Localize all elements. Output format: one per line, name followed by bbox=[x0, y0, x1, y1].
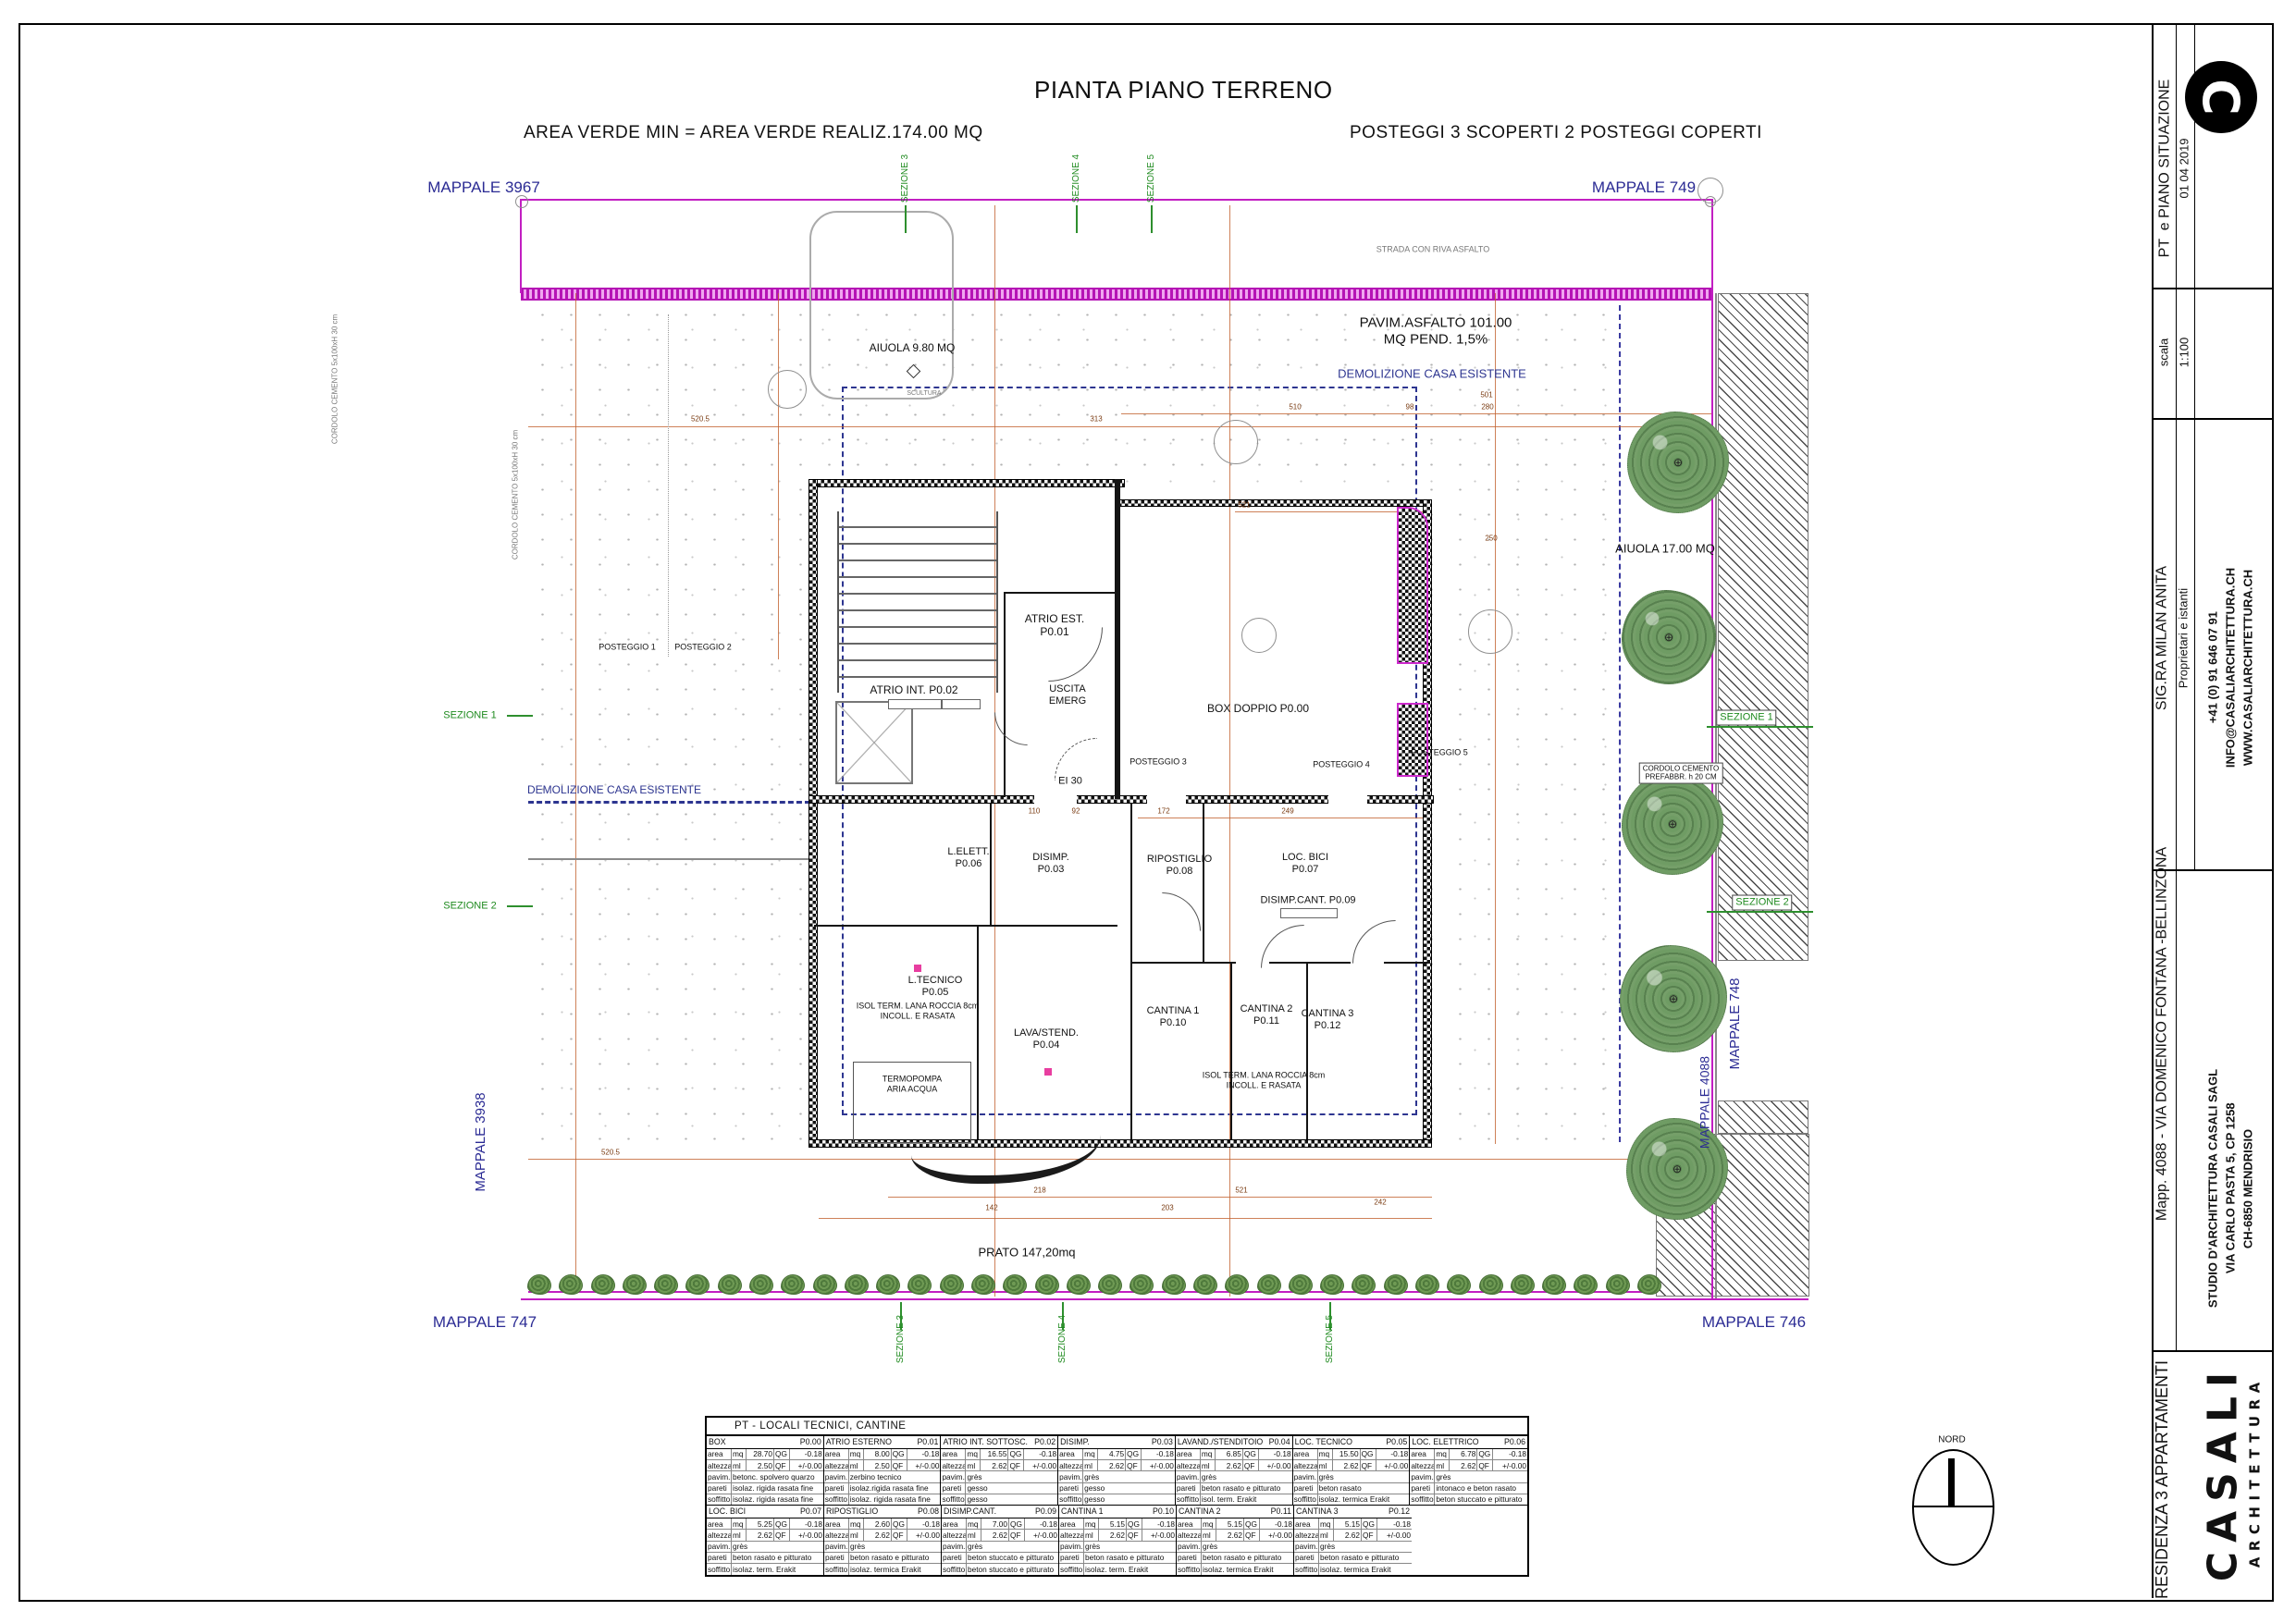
table-cell: area bbox=[707, 1449, 732, 1459]
scale-label: scala bbox=[2156, 338, 2174, 366]
table-cell: 2.62 bbox=[981, 1460, 1008, 1470]
table-cell: LOC. ELETTRICO bbox=[1412, 1438, 1478, 1446]
table-cell: pavim. bbox=[1058, 1471, 1083, 1482]
demolition-label: DEMOLIZIONE CASA ESISTENTE bbox=[1338, 366, 1526, 380]
table-cell: P0.00 bbox=[800, 1438, 821, 1446]
hedge-bush-icon bbox=[623, 1274, 647, 1295]
table-cell: zerbino tecnico bbox=[849, 1471, 941, 1482]
level-tag bbox=[1280, 908, 1338, 918]
hedge-bush-icon bbox=[1352, 1274, 1376, 1295]
table-cell: P0.10 bbox=[1153, 1507, 1174, 1516]
table-cell: 2.62 bbox=[981, 1530, 1009, 1540]
table-cell: +/-0.00 bbox=[1493, 1460, 1527, 1470]
titleblock-divider bbox=[2152, 288, 2272, 289]
dimension-line bbox=[528, 426, 1713, 427]
hedge-bush-icon bbox=[1129, 1274, 1154, 1295]
table-cell: LOC. BICI bbox=[709, 1507, 746, 1516]
table-cell: QG bbox=[1008, 1449, 1024, 1459]
table-cell: area bbox=[942, 1518, 967, 1529]
table-cell: grès bbox=[1201, 1471, 1292, 1482]
table-cell: ml bbox=[967, 1530, 981, 1540]
section-2-label: SEZIONE 2 bbox=[443, 901, 496, 913]
dimension-line bbox=[1121, 413, 1711, 414]
table-cell: isolaz. termica Erakit bbox=[1318, 1494, 1410, 1505]
table-cell: grès bbox=[1083, 1471, 1175, 1482]
table-cell: ATRIO ESTERNO bbox=[826, 1438, 892, 1446]
table-cell: pareti bbox=[941, 1483, 966, 1494]
dim-value: 142 bbox=[985, 1203, 997, 1211]
room-atrio-esterno: ATRIO EST. P0.01 bbox=[1025, 612, 1084, 638]
table-cell: -0.18 bbox=[1024, 1449, 1057, 1459]
table-cell: soffitto bbox=[1058, 1494, 1083, 1505]
circle-marker bbox=[1468, 609, 1512, 654]
table-cell: 2.62 bbox=[864, 1530, 892, 1540]
north-label: NORD bbox=[1938, 1435, 1965, 1445]
room-card-P0.11: CANTINA 2P0.11areamq5.15QG-0.18altezzaml… bbox=[1177, 1506, 1294, 1574]
door-opening bbox=[1147, 795, 1186, 804]
table-cell: area bbox=[707, 1518, 732, 1529]
table-cell: 2.62 bbox=[1216, 1530, 1244, 1540]
heat-pump-label: TERMOPOMPA ARIA ACQUA bbox=[883, 1074, 942, 1093]
room-card-P0.12: CANTINA 3P0.12areamq5.15QG-0.18altezzaml… bbox=[1294, 1506, 1412, 1574]
partition bbox=[1230, 962, 1232, 1139]
mappale-4088: MAPPALE 4088 bbox=[1697, 1056, 1713, 1149]
wall bbox=[810, 479, 1125, 487]
firm-address: STUDIO D'ARCHITETTURA CASALI SAGL VIA CA… bbox=[2205, 1069, 2258, 1308]
hedge-bush-icon bbox=[940, 1274, 964, 1295]
table-cell: -0.18 bbox=[1025, 1518, 1058, 1529]
table-cell: mq bbox=[1201, 1449, 1216, 1459]
table-cell: mq bbox=[966, 1449, 981, 1459]
dimension-line bbox=[1138, 818, 1432, 818]
hedge-bush-icon bbox=[654, 1274, 678, 1295]
room-ripostiglio: RIPOSTIGLIO P0.08 bbox=[1147, 854, 1212, 878]
table-cell: pareti bbox=[1410, 1483, 1435, 1494]
hedge-bush-icon bbox=[1067, 1274, 1091, 1295]
table-cell: soffitto bbox=[1176, 1494, 1201, 1505]
partition bbox=[1203, 804, 1204, 963]
table-cell: grès bbox=[1318, 1471, 1410, 1482]
table-cell: QF bbox=[1243, 1460, 1259, 1470]
dim-value: 501 bbox=[1480, 390, 1492, 399]
property-line bbox=[520, 199, 522, 293]
boundary-hatch-band bbox=[521, 288, 1713, 301]
casali-logotype: CASALI ARCHITETTURA bbox=[2200, 1363, 2264, 1582]
table-cell: 4.75 bbox=[1098, 1449, 1126, 1459]
table-cell: +/-0.00 bbox=[1377, 1530, 1412, 1540]
table-cell: 7.00 bbox=[981, 1518, 1009, 1529]
dim-value: 110 bbox=[1029, 806, 1041, 815]
table-cell: P0.02 bbox=[1034, 1438, 1055, 1446]
table-cell: P0.01 bbox=[917, 1438, 938, 1446]
table-cell: QF bbox=[1361, 1460, 1376, 1470]
table-cell: +/-0.00 bbox=[907, 1460, 941, 1470]
table-cell: P0.09 bbox=[1035, 1507, 1056, 1516]
elevator bbox=[835, 701, 913, 784]
hedge-bush-icon bbox=[718, 1274, 742, 1295]
table-cell: area bbox=[1294, 1518, 1319, 1529]
table-cell: 6.78 bbox=[1450, 1449, 1477, 1459]
dim-value: 172 bbox=[1157, 806, 1169, 815]
level-tag bbox=[942, 699, 981, 709]
table-cell: -0.18 bbox=[790, 1518, 823, 1529]
section-line bbox=[1707, 911, 1813, 913]
table-cell: altezza bbox=[1059, 1530, 1084, 1540]
table-cell: soffitto bbox=[1059, 1564, 1084, 1574]
table-cell: QG bbox=[1362, 1518, 1377, 1529]
table-cell: pavim. bbox=[1059, 1542, 1084, 1552]
table-cell: pavim. bbox=[942, 1542, 967, 1552]
mappale-3938: MAPPALE 3938 bbox=[473, 1092, 489, 1191]
table-cell: +/-0.00 bbox=[1142, 1460, 1175, 1470]
table-cell: -0.18 bbox=[1376, 1449, 1410, 1459]
dimension-line bbox=[778, 293, 779, 659]
table-cell: altezza bbox=[1294, 1530, 1319, 1540]
dim-value: 510 bbox=[1289, 402, 1301, 411]
titleblock-divider bbox=[2152, 418, 2272, 420]
table-cell: ml bbox=[1319, 1530, 1334, 1540]
table-cell: 5.15 bbox=[1099, 1518, 1127, 1529]
hedge-bush-icon bbox=[591, 1274, 615, 1295]
table-cell: pavim. bbox=[1177, 1542, 1202, 1552]
dim-value: 521 bbox=[1235, 1186, 1247, 1194]
project-name: RESIDENZA 3 APPARTAMENTI bbox=[2150, 1360, 2174, 1599]
room-cantina-2: CANTINA 2 P0.11 bbox=[1241, 1003, 1293, 1027]
dim-value: 92 bbox=[1072, 806, 1080, 815]
hedge-bush-icon bbox=[1574, 1274, 1598, 1295]
section-1-label: SEZIONE 1 bbox=[1716, 710, 1776, 726]
table-cell: altezza bbox=[1058, 1460, 1083, 1470]
table-cell: LOC. TECNICO bbox=[1295, 1438, 1352, 1446]
table-cell: ml bbox=[1202, 1530, 1216, 1540]
table-cell: P0.11 bbox=[1271, 1507, 1291, 1516]
table-cell: mq bbox=[1318, 1449, 1333, 1459]
parking-3-label: POSTEGGIO 3 bbox=[1129, 757, 1187, 768]
table-cell: +/-0.00 bbox=[1259, 1460, 1292, 1470]
table-cell: pavim. bbox=[1294, 1542, 1319, 1552]
dim-value: 250 bbox=[1485, 534, 1497, 542]
table-cell: CANTINA 3 bbox=[1296, 1507, 1338, 1516]
table-cell: QF bbox=[1244, 1530, 1260, 1540]
table-cell: QG bbox=[774, 1518, 790, 1529]
roof-outline bbox=[809, 211, 954, 400]
table-cell: QG bbox=[1243, 1449, 1259, 1459]
dimension-line bbox=[819, 1218, 1432, 1219]
table-cell: 2.50 bbox=[864, 1460, 892, 1470]
table-cell: QG bbox=[892, 1518, 907, 1529]
table-cell: area bbox=[824, 1449, 849, 1459]
street-label: STRADA CON RIVA ASFALTO bbox=[1376, 245, 1490, 255]
section-line bbox=[1707, 726, 1813, 728]
section-4-label: SEZIONE 4 bbox=[1057, 1315, 1068, 1363]
hedge-bush-icon bbox=[1003, 1274, 1027, 1295]
drawing-date: 01 04 2019 bbox=[2177, 138, 2194, 198]
tree-icon: ⊕ bbox=[1620, 945, 1727, 1052]
table-cell: pareti bbox=[707, 1483, 732, 1494]
table-cell: P0.12 bbox=[1389, 1507, 1410, 1516]
hedge-bush-icon bbox=[1384, 1274, 1408, 1295]
table-cell: ml bbox=[1084, 1530, 1099, 1540]
table-cell: mq bbox=[1083, 1449, 1098, 1459]
hedge-bush-icon bbox=[1511, 1274, 1535, 1295]
table-cell: QF bbox=[892, 1530, 907, 1540]
table-cell: ml bbox=[1435, 1460, 1450, 1470]
curb-label: CORDOLO CEMENTO PREFABBR. h 20 CM bbox=[1639, 763, 1723, 784]
table-cell: beton rasato e pitturato bbox=[732, 1553, 823, 1563]
hedge-bush-icon bbox=[971, 1274, 995, 1295]
parking-edge bbox=[528, 858, 815, 860]
table-cell: area bbox=[1293, 1449, 1318, 1459]
room-locale-tecnico: L.TECNICO P0.05 bbox=[908, 975, 963, 999]
table-cell: beton stuccato e pitturato bbox=[1435, 1494, 1527, 1505]
table-cell: area bbox=[1059, 1518, 1084, 1529]
table-cell: area bbox=[1177, 1518, 1202, 1529]
table-cell: 2.62 bbox=[1099, 1530, 1127, 1540]
table-cell: beton rasato e pitturato bbox=[1319, 1553, 1412, 1563]
table-cell: soffitto bbox=[1293, 1494, 1318, 1505]
tree-icon: ⊕ bbox=[1622, 590, 1716, 684]
door-opening bbox=[1328, 795, 1367, 804]
table-cell: altezza bbox=[941, 1460, 966, 1470]
staircase bbox=[837, 511, 998, 693]
insulation-note: ISOL TERM. LANA ROCCIA 8cm INCOLL. E RAS… bbox=[1203, 1070, 1326, 1089]
room-card-P0.00: BOXP0.00areamq28.70QG-0.18altezzaml2.50Q… bbox=[707, 1436, 824, 1505]
table-cell: isolaz.rigida rasata fine bbox=[849, 1483, 941, 1494]
table-cell: altezza bbox=[942, 1530, 967, 1540]
table-cell: DISIMP. bbox=[1060, 1438, 1090, 1446]
dim-value: 520.5 bbox=[601, 1148, 620, 1156]
table-cell: QG bbox=[774, 1449, 790, 1459]
table-cell: pareti bbox=[1177, 1553, 1202, 1563]
hedge-bush-icon bbox=[876, 1274, 900, 1295]
room-cantina-3: CANTINA 3 P0.12 bbox=[1302, 1008, 1354, 1032]
room-card-P0.10: CANTINA 1P0.10areamq5.15QG-0.18altezzaml… bbox=[1059, 1506, 1177, 1574]
dim-value: 203 bbox=[1161, 1203, 1173, 1211]
table-cell: altezza bbox=[1293, 1460, 1318, 1470]
table-cell: gesso bbox=[966, 1494, 1057, 1505]
room-lavanderia: LAVA/STEND. P0.04 bbox=[1014, 1027, 1079, 1051]
mappale-746: MAPPALE 746 bbox=[1702, 1313, 1806, 1332]
table-cell: beton stuccato e pitturato bbox=[967, 1564, 1058, 1574]
table-cell: QF bbox=[1477, 1460, 1493, 1470]
asphalt-label: PAVIM.ASFALTO 101.00 MQ PEND. 1,5% bbox=[1360, 314, 1512, 347]
table-cell: 2.50 bbox=[747, 1460, 774, 1470]
table-cell: altezza bbox=[824, 1460, 849, 1470]
curb-label: CORDOLO CEMENTO 5x100xH 30 cm bbox=[511, 430, 519, 559]
titleblock-divider bbox=[2152, 1350, 2272, 1352]
table-cell: mq bbox=[849, 1449, 864, 1459]
table-cell: QF bbox=[1126, 1460, 1142, 1470]
table-cell: CANTINA 2 bbox=[1179, 1507, 1220, 1516]
table-cell: RIPOSTIGLIO bbox=[826, 1507, 878, 1516]
table-cell: soffitto bbox=[824, 1494, 849, 1505]
hedge-bush-icon bbox=[1257, 1274, 1281, 1295]
room-card-P0.09: DISIMP.CANT.P0.09areamq7.00QG-0.18altezz… bbox=[942, 1506, 1059, 1574]
property-line bbox=[521, 1298, 1808, 1300]
table-cell: 5.15 bbox=[1334, 1518, 1362, 1529]
table-cell: QF bbox=[1127, 1530, 1142, 1540]
table-cell: 5.25 bbox=[747, 1518, 774, 1529]
table-cell: pavim. bbox=[824, 1542, 849, 1552]
circle-marker bbox=[768, 370, 807, 409]
table-cell: isolaz. term. Erakit bbox=[1084, 1564, 1176, 1574]
dim-value: 98 bbox=[1406, 402, 1414, 411]
table-cell: mq bbox=[849, 1518, 864, 1529]
table-cell: altezza bbox=[707, 1530, 732, 1540]
table-cell: P0.07 bbox=[800, 1507, 821, 1516]
table-cell: pavim. bbox=[1293, 1471, 1318, 1482]
table-cell: LAVAND./STENDITOIO bbox=[1178, 1438, 1263, 1446]
curb-label: CORDOLO CEMENTO 5x100xH 30 cm bbox=[330, 314, 339, 444]
door-opening bbox=[1034, 795, 1077, 804]
table-cell: QF bbox=[1362, 1530, 1377, 1540]
hedge-bush-icon bbox=[1606, 1274, 1630, 1295]
room-disimpegno-cantine: DISIMP.CANT. P0.09 bbox=[1260, 895, 1355, 907]
floor-plan: ⊕⊕⊕⊕⊕MAPPALE 3967MAPPALE 749MAPPALE 747M… bbox=[0, 0, 2296, 1623]
marker bbox=[914, 965, 921, 972]
table-cell: QG bbox=[1127, 1518, 1142, 1529]
room-cantina-1: CANTINA 1 P0.10 bbox=[1147, 1005, 1200, 1029]
table-cell: pareti bbox=[824, 1553, 849, 1563]
table-cell: pavim. bbox=[824, 1471, 849, 1482]
rooms-table-title: PT - LOCALI TECNICI, CANTINE bbox=[707, 1418, 1527, 1436]
level-tag bbox=[888, 699, 942, 709]
table-cell: ml bbox=[732, 1460, 747, 1470]
table-cell: +/-0.00 bbox=[1025, 1530, 1058, 1540]
table-cell: soffitto bbox=[824, 1564, 849, 1574]
table-cell: altezza bbox=[1410, 1460, 1435, 1470]
room-card-P0.01: ATRIO ESTERNOP0.01areamq8.00QG-0.18altez… bbox=[824, 1436, 942, 1505]
table-cell: mq bbox=[1435, 1449, 1450, 1459]
room-locale-elettrico: L.ELETT. P0.06 bbox=[947, 846, 989, 870]
tree-icon: ⊕ bbox=[1626, 1118, 1728, 1220]
table-cell: 2.62 bbox=[1098, 1460, 1126, 1470]
neighbor-building bbox=[1718, 1100, 1808, 1134]
hedge-bush-icon bbox=[813, 1274, 837, 1295]
section-line bbox=[905, 205, 907, 233]
partition bbox=[990, 804, 992, 927]
table-cell: beton rasato e pitturato bbox=[849, 1553, 941, 1563]
hedge-bush-icon bbox=[907, 1274, 932, 1295]
flowerbed-line bbox=[1619, 305, 1621, 1142]
dimension-line bbox=[888, 1197, 1432, 1198]
hedge-bush-icon bbox=[1193, 1274, 1217, 1295]
hedge-bush-icon bbox=[1225, 1274, 1249, 1295]
section-5-label: SEZIONE 5 bbox=[1146, 154, 1157, 203]
table-cell: grès bbox=[1202, 1542, 1293, 1552]
circle-marker bbox=[515, 195, 528, 208]
hedge-bush-icon bbox=[559, 1274, 583, 1295]
table-cell: soffitto bbox=[941, 1494, 966, 1505]
partition bbox=[1004, 592, 1118, 594]
section-line bbox=[507, 905, 533, 907]
table-cell: ATRIO INT. SOTTOSC. bbox=[943, 1438, 1028, 1446]
dim-value: 249 bbox=[1281, 806, 1293, 815]
table-cell: gesso bbox=[1083, 1483, 1175, 1494]
table-cell: soffitto bbox=[1410, 1494, 1435, 1505]
table-cell: mq bbox=[732, 1518, 747, 1529]
insulation-note: ISOL TERM. LANA ROCCIA 8cm INCOLL. E RAS… bbox=[857, 1001, 980, 1020]
table-cell: pavim. bbox=[941, 1471, 966, 1482]
hedge-bush-icon bbox=[845, 1274, 869, 1295]
room-card-P0.07: LOC. BICIP0.07areamq5.25QG-0.18altezzaml… bbox=[707, 1506, 824, 1574]
wall bbox=[809, 479, 818, 1148]
table-cell: area bbox=[1058, 1449, 1083, 1459]
dim-value: 313 bbox=[1090, 414, 1102, 423]
table-cell: isolaz. rigida rasata fine bbox=[849, 1494, 941, 1505]
hedge-bush-icon bbox=[1637, 1274, 1661, 1295]
client-name: SIG.RA MILAN ANITA bbox=[2151, 566, 2172, 710]
table-cell: ml bbox=[1318, 1460, 1333, 1470]
table-cell: +/-0.00 bbox=[1376, 1460, 1410, 1470]
table-cell: -0.18 bbox=[1493, 1449, 1527, 1459]
table-cell: gesso bbox=[966, 1483, 1057, 1494]
table-cell: -0.18 bbox=[790, 1449, 823, 1459]
table-cell: intonaco e beton rasato bbox=[1435, 1483, 1527, 1494]
firm-contact: +41 (0) 91 646 07 91 INFO@CASALIARCHITET… bbox=[2205, 568, 2258, 768]
table-cell: isolaz. rigida rasata fine bbox=[732, 1483, 823, 1494]
table-cell: pareti bbox=[824, 1483, 849, 1494]
table-cell: pareti bbox=[707, 1553, 732, 1563]
table-cell: ml bbox=[849, 1460, 864, 1470]
project-location: Mapp. 4088 - VIA DOMENICO FONTANA -BELLI… bbox=[2151, 847, 2172, 1221]
table-cell: -0.18 bbox=[907, 1449, 941, 1459]
hedge-bush-icon bbox=[749, 1274, 773, 1295]
table-cell: ml bbox=[1083, 1460, 1098, 1470]
room-card-P0.08: RIPOSTIGLIOP0.08areamq2.60QG-0.18altezza… bbox=[824, 1506, 942, 1574]
dim-value: 280 bbox=[1481, 402, 1493, 411]
logotype-name: CASALI bbox=[2200, 1363, 2247, 1582]
table-cell: altezza bbox=[1177, 1530, 1202, 1540]
table-cell: grès bbox=[1084, 1542, 1176, 1552]
table-cell: grès bbox=[732, 1542, 823, 1552]
table-cell: beton rasato e pitturato bbox=[1084, 1553, 1176, 1563]
section-1-label: SEZIONE 1 bbox=[443, 710, 496, 722]
room-disimpegno: DISIMP. P0.03 bbox=[1032, 852, 1069, 876]
table-cell: -0.18 bbox=[1377, 1518, 1412, 1529]
partition bbox=[1306, 962, 1308, 1139]
table-cell: BOX bbox=[709, 1438, 726, 1446]
room-box-doppio: BOX DOPPIO P0.00 bbox=[1207, 702, 1309, 715]
scale-value: 1:100 bbox=[2177, 338, 2194, 368]
parking-2-label: POSTEGGIO 2 bbox=[674, 643, 732, 653]
table-cell: soffitto bbox=[707, 1564, 732, 1574]
table-cell: altezza bbox=[707, 1460, 732, 1470]
flowerbed-label: AIUOLA 17.00 MQ bbox=[1615, 541, 1715, 555]
table-cell: grès bbox=[849, 1542, 941, 1552]
table-cell: QF bbox=[892, 1460, 907, 1470]
table-cell: QF bbox=[774, 1460, 790, 1470]
parking-5-label: POSTEGGIO 5 bbox=[1411, 748, 1468, 758]
table-cell: pareti bbox=[942, 1553, 967, 1563]
marker bbox=[1044, 1068, 1052, 1076]
table-cell: -0.18 bbox=[1259, 1449, 1292, 1459]
rooms-table-row-1: BOXP0.00areamq28.70QG-0.18altezzaml2.50Q… bbox=[707, 1436, 1527, 1505]
table-cell: 2.62 bbox=[1334, 1530, 1362, 1540]
table-cell: 2.60 bbox=[864, 1518, 892, 1529]
table-cell: 15.50 bbox=[1333, 1449, 1361, 1459]
hedge-bush-icon bbox=[527, 1274, 551, 1295]
table-cell: isolaz. termica Erakit bbox=[1319, 1564, 1412, 1574]
compass-needle-icon bbox=[1948, 1458, 1955, 1506]
table-cell: grès bbox=[1319, 1542, 1412, 1552]
table-cell: QG bbox=[1361, 1449, 1376, 1459]
casali-logo-icon: C bbox=[2185, 61, 2257, 133]
table-cell: soffitto bbox=[942, 1564, 967, 1574]
hedge-bush-icon bbox=[1320, 1274, 1344, 1295]
table-cell: QF bbox=[1008, 1460, 1024, 1470]
carport-pier bbox=[1397, 507, 1428, 664]
